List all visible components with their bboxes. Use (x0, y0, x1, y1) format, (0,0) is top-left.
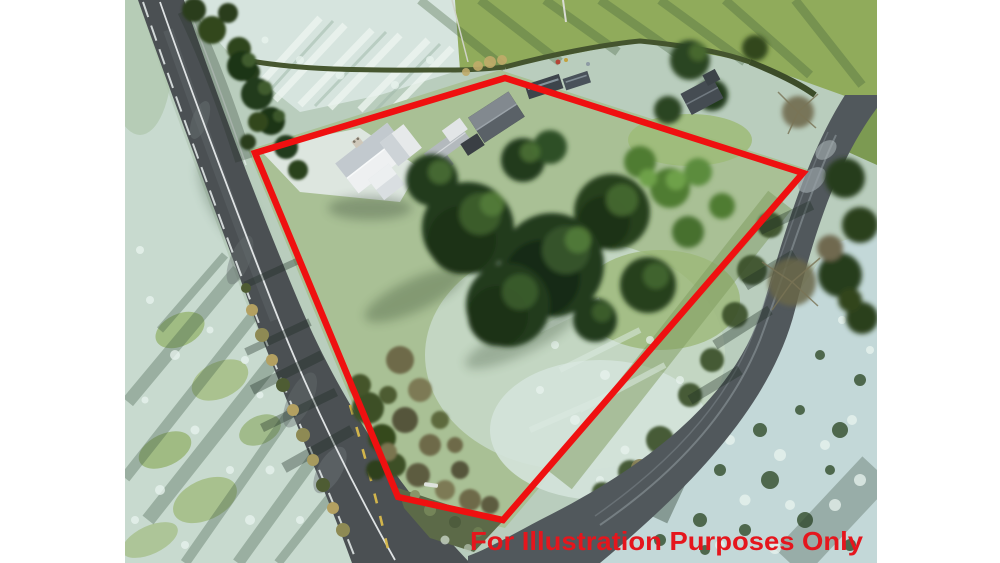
watermark-text: For Illustration Purposes Only (470, 526, 864, 556)
screenshot-canvas: For Illustration Purposes Only (0, 0, 1000, 563)
aerial-photo: For Illustration Purposes Only (0, 0, 1000, 563)
